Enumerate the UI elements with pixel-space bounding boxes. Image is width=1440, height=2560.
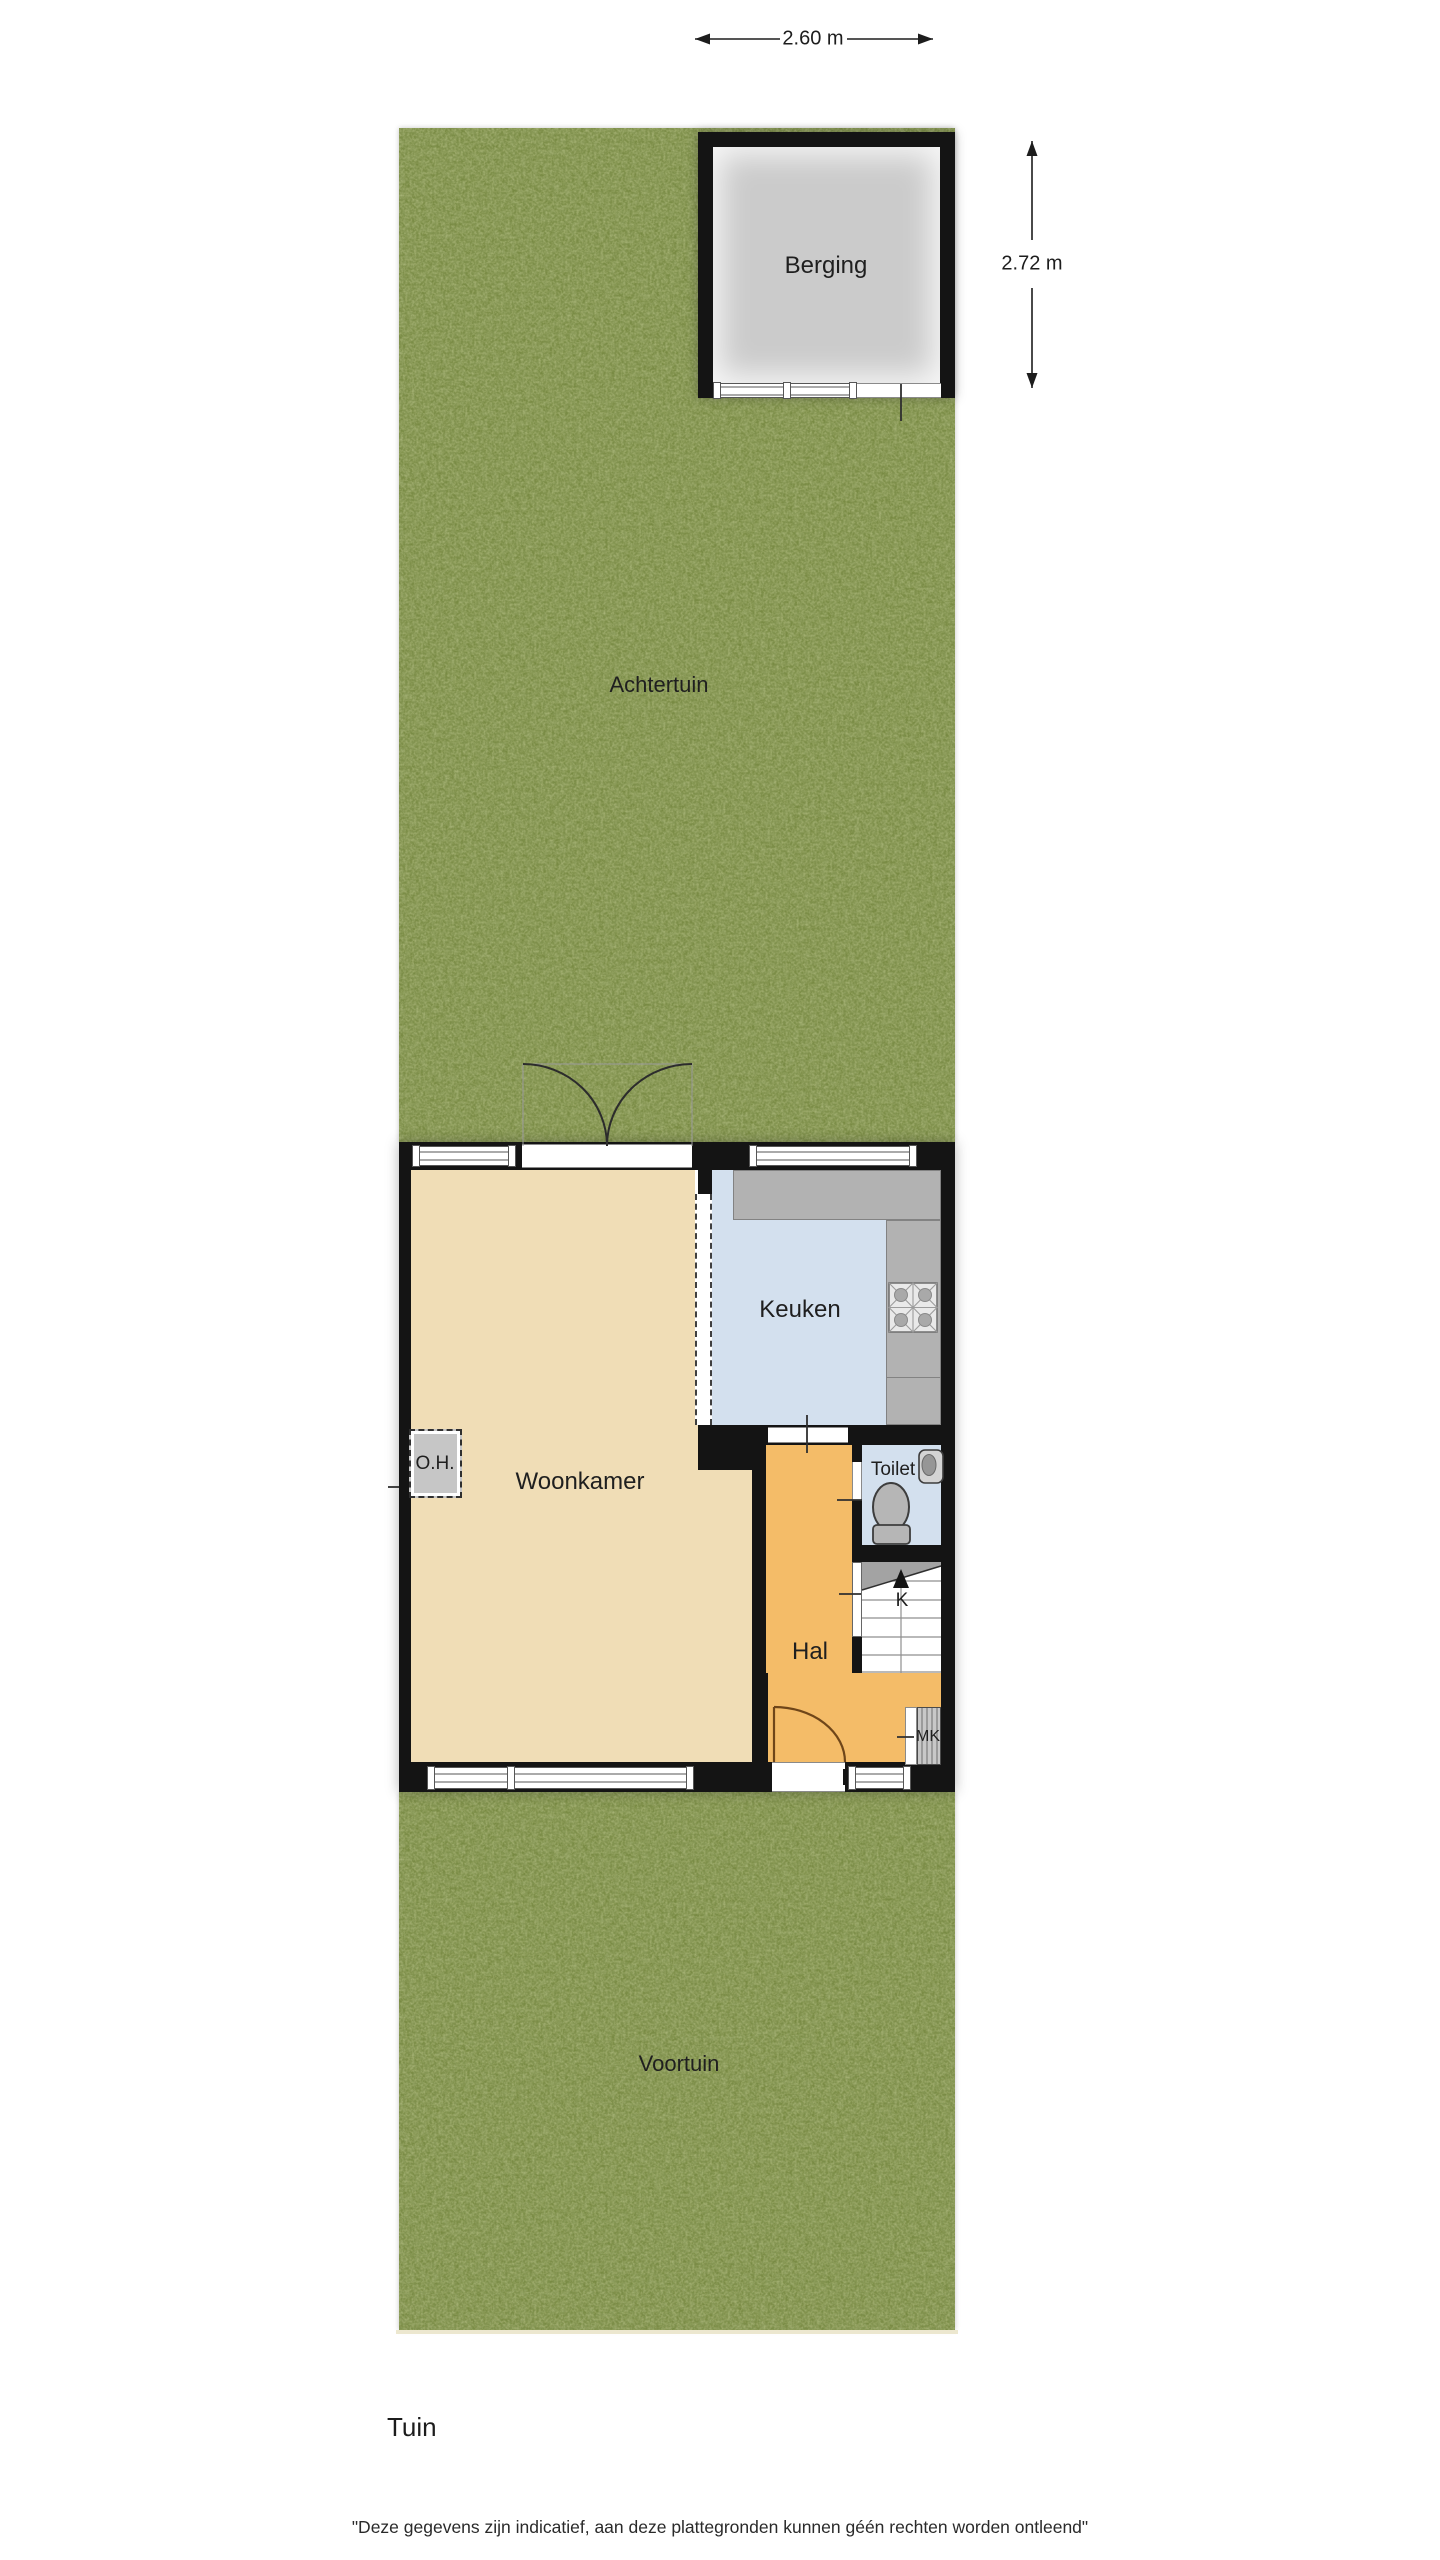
window-mullion — [507, 1766, 515, 1790]
room-label-keuken: Keuken — [759, 1296, 840, 1324]
window-cap — [412, 1145, 420, 1167]
dimension-height-label: 2.72 m — [1001, 253, 1062, 276]
woonkamer-floor — [411, 1170, 695, 1425]
kitchen-counter-right — [886, 1220, 941, 1425]
window-cap — [713, 382, 721, 399]
front-door-opening — [772, 1762, 845, 1792]
window-cap — [686, 1766, 694, 1790]
disclaimer-text: "Deze gegevens zijn indicatief, aan deze… — [0, 2517, 1440, 2538]
wall-stairs-left — [852, 1637, 862, 1673]
woonkamer-floor — [411, 1470, 752, 1762]
window-glass — [854, 1774, 905, 1783]
window-cap — [903, 1766, 911, 1790]
garden-doors-opening — [522, 1144, 692, 1168]
room-label-voortuin: Voortuin — [639, 2051, 720, 2077]
room-label-woonkamer: Woonkamer — [516, 1468, 645, 1496]
floorplan-canvas: 2.60 m 2.72 m Berging Achtertuin Woonkam… — [0, 0, 1440, 2560]
rear-window-woonkamer — [412, 1146, 516, 1166]
closet-label-mk: MK — [916, 1728, 940, 1746]
wall-corner-rear-right — [922, 1142, 955, 1170]
garden-curb — [396, 2330, 958, 2334]
front-window-hal — [848, 1767, 911, 1789]
window-cap — [749, 1145, 757, 1167]
stairs-railing — [852, 1562, 862, 1637]
room-label-achtertuin: Achtertuin — [609, 672, 708, 698]
window-cap — [508, 1145, 516, 1167]
label-open-haard: O.H. — [415, 1453, 454, 1475]
room-label-berging: Berging — [785, 252, 868, 280]
page-title: Tuin — [387, 2412, 437, 2443]
wall-toilet-bottom — [852, 1545, 955, 1562]
window-glass — [755, 1152, 911, 1161]
window-cap — [427, 1766, 435, 1790]
room-label-hal: Hal — [792, 1638, 828, 1666]
rear-window-keuken — [749, 1146, 917, 1166]
counter-segment-line — [887, 1377, 940, 1378]
window-glass — [433, 1774, 688, 1783]
window-glass — [418, 1152, 510, 1161]
window-cap — [849, 382, 857, 399]
room-label-toilet: Toilet — [871, 1459, 915, 1481]
wall-right — [941, 1142, 955, 1792]
stairs-area — [862, 1562, 941, 1673]
berging-window — [713, 383, 857, 398]
toilet-door — [852, 1462, 862, 1500]
kitchen-counter-top — [733, 1170, 941, 1220]
window-cap — [848, 1766, 856, 1790]
dimension-width-label: 2.60 m — [782, 28, 843, 51]
open-connection-dashed — [695, 1194, 712, 1425]
berging-door-band — [857, 383, 941, 398]
front-window-woonkamer — [427, 1767, 694, 1789]
stairs-label-k: K — [896, 1590, 909, 1612]
window-cap — [909, 1145, 917, 1167]
window-mullion — [783, 382, 791, 399]
keuken-hal-opening — [768, 1427, 848, 1443]
